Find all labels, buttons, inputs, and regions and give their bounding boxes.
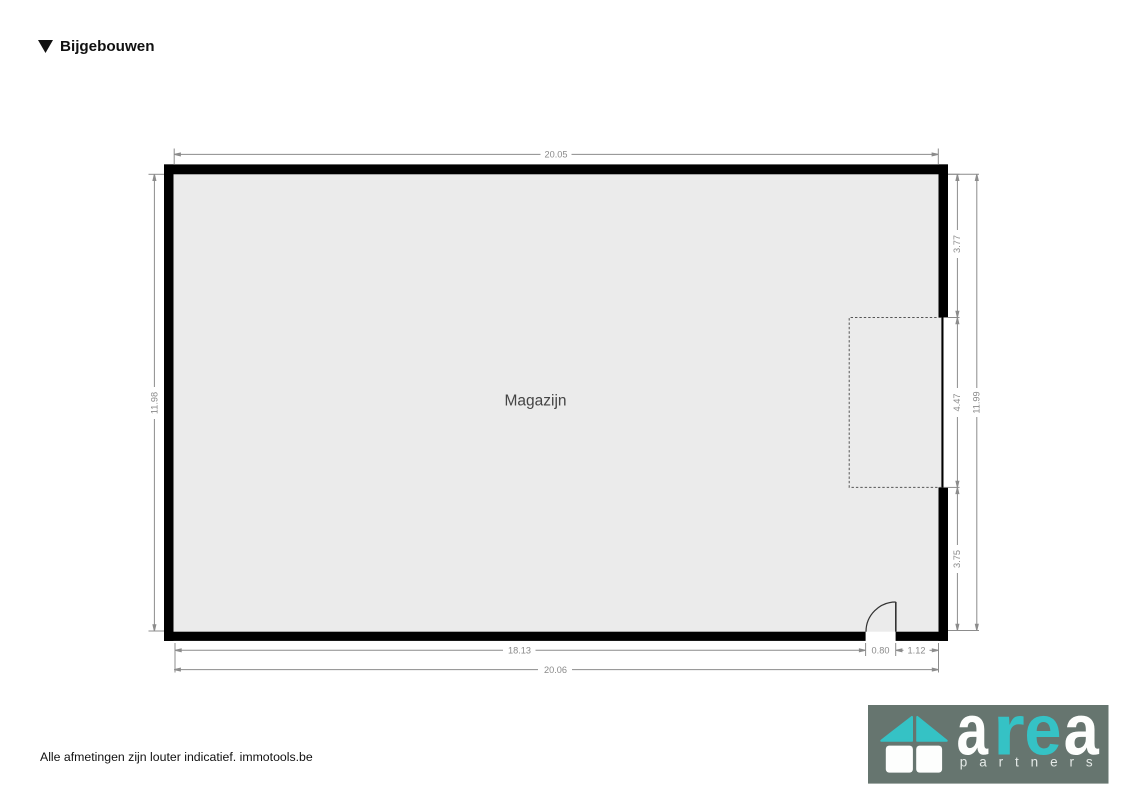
svg-text:0.80: 0.80 [872, 646, 890, 656]
svg-text:11.99: 11.99 [971, 391, 981, 413]
svg-text:3.75: 3.75 [952, 550, 962, 568]
svg-text:20.05: 20.05 [545, 150, 568, 160]
svg-text:18.13: 18.13 [508, 646, 531, 656]
svg-text:1.12: 1.12 [908, 646, 926, 656]
svg-text:11.98: 11.98 [149, 392, 159, 414]
svg-text:Magazijn: Magazijn [504, 392, 566, 409]
svg-text:4.47: 4.47 [952, 394, 962, 412]
svg-text:20.06: 20.06 [544, 665, 567, 675]
svg-text:3.77: 3.77 [952, 235, 962, 253]
svg-text:partners: partners [960, 755, 1105, 770]
